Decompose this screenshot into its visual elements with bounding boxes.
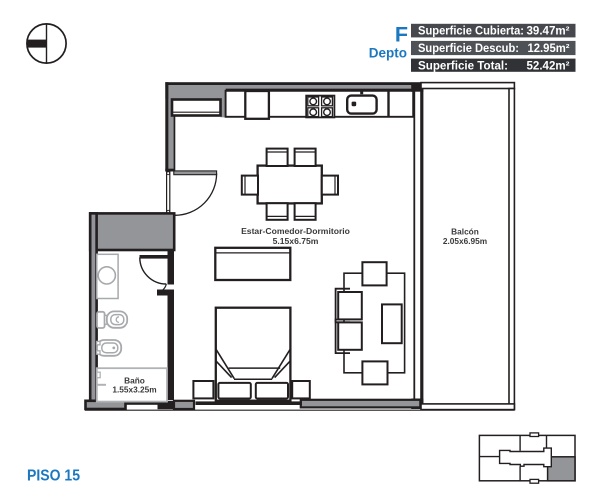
svg-text:Estar-Comedor-Dormitorio: Estar-Comedor-Dormitorio [241,226,350,236]
svg-text:52.42m²: 52.42m² [527,60,570,72]
svg-text:PISO 15: PISO 15 [27,468,80,485]
svg-text:Superficie Cubierta:: Superficie Cubierta: [418,26,524,38]
svg-text:Superficie Total:: Superficie Total: [418,60,508,72]
svg-text:1.55x3.25m: 1.55x3.25m [112,385,156,395]
svg-text:12.95m²: 12.95m² [528,43,570,55]
svg-text:Balcón: Balcón [451,227,479,237]
svg-text:2.05x6.95m: 2.05x6.95m [443,236,487,246]
svg-text:Depto: Depto [369,45,407,60]
svg-text:F: F [395,22,408,46]
svg-text:39.47m²: 39.47m² [527,26,570,38]
svg-text:Superficie Descub:: Superficie Descub: [418,43,519,55]
svg-text:5.15x6.75m: 5.15x6.75m [273,236,319,246]
